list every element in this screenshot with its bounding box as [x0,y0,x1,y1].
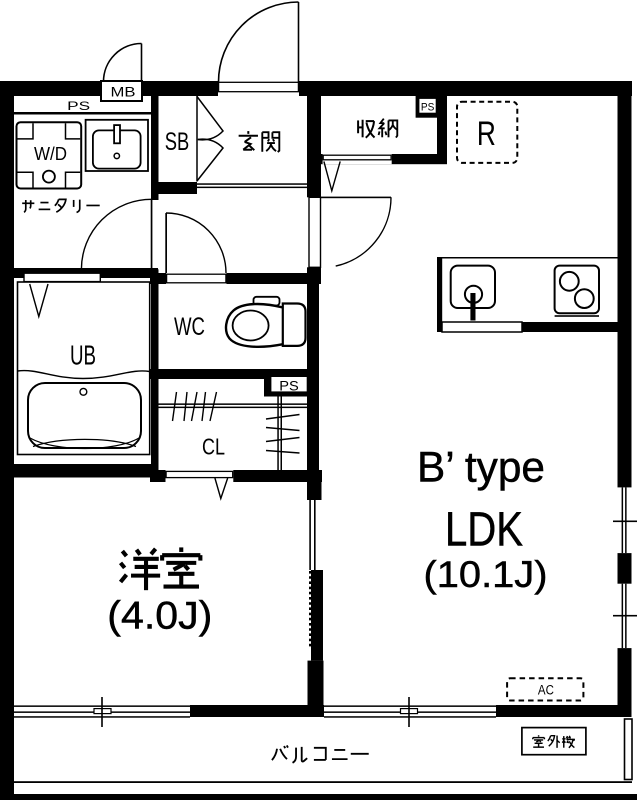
svg-text:R: R [477,115,496,153]
svg-text:WC: WC [174,313,205,341]
svg-text:MB: MB [111,84,136,100]
svg-text:W/D: W/D [34,144,67,164]
svg-text:(4.0J): (4.0J) [107,595,212,638]
svg-text:PS: PS [279,378,299,394]
svg-text:LDK: LDK [445,503,523,556]
svg-text:CL: CL [202,434,225,460]
svg-text:UB: UB [70,340,96,371]
svg-text:B’ type: B’ type [417,444,545,492]
svg-text:AC: AC [538,682,554,697]
svg-text:PS: PS [421,102,435,114]
svg-text:(10.1J): (10.1J) [424,554,548,595]
svg-text:PS: PS [67,99,90,113]
svg-text:SB: SB [165,128,190,156]
